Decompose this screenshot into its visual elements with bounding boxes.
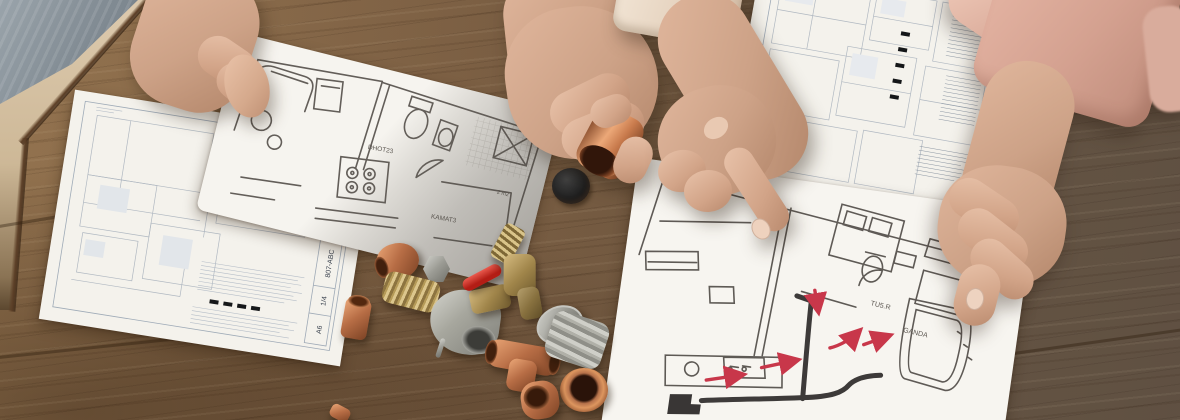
photo-plumbing-plan-review: 807-ABC 1/4 A6 bbox=[0, 0, 1180, 420]
arm-right-pink-sleeve bbox=[0, 0, 1180, 420]
